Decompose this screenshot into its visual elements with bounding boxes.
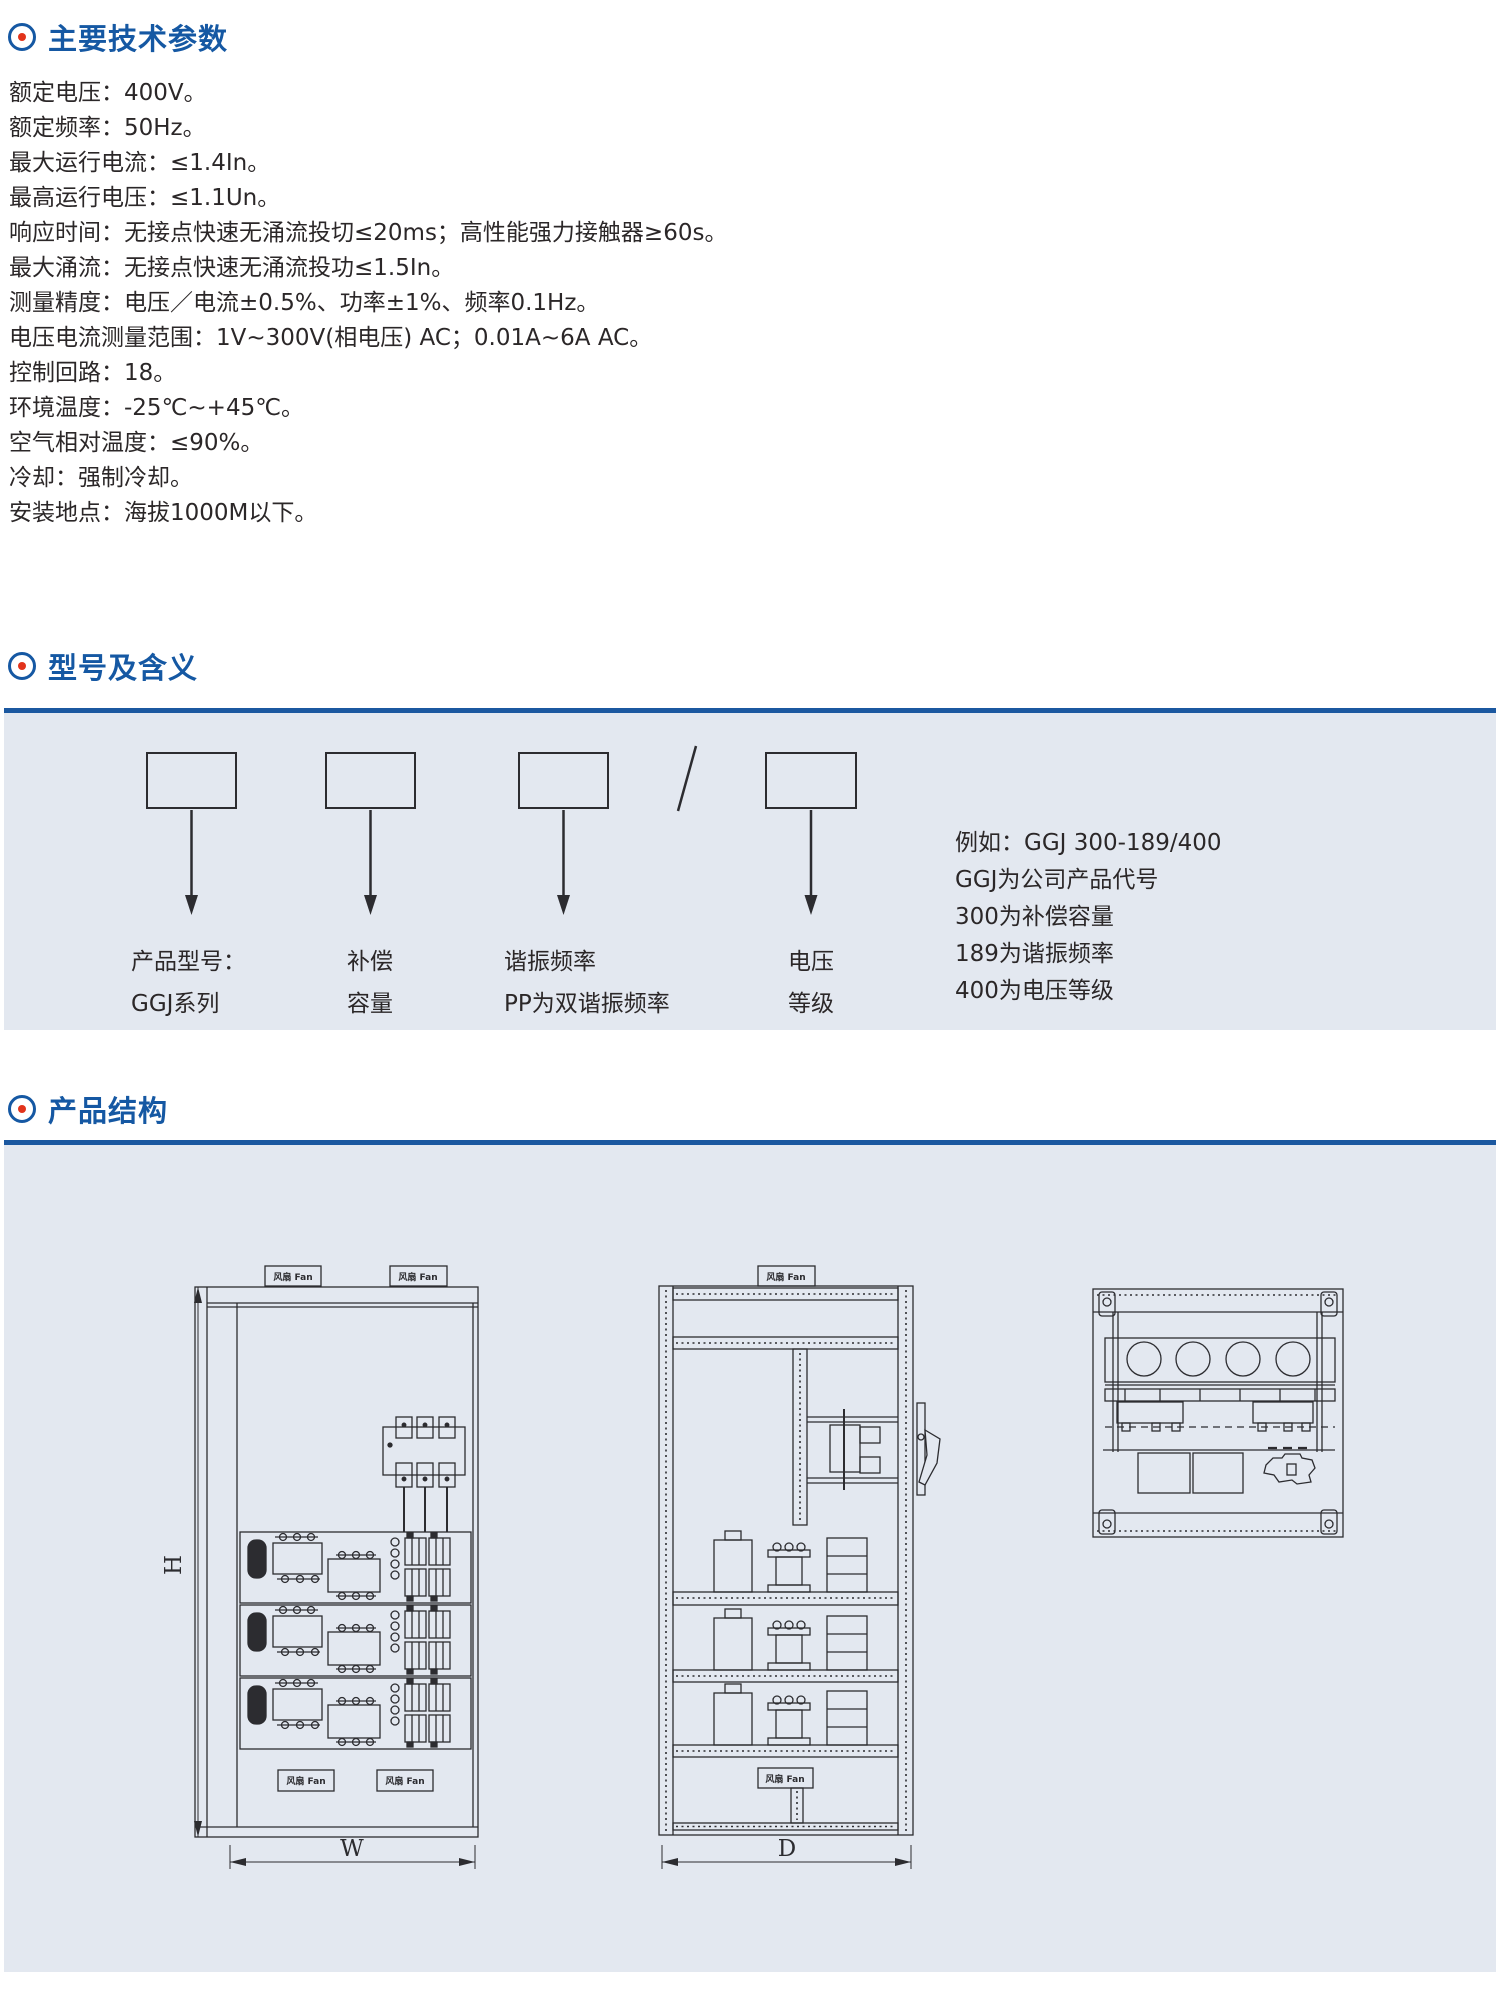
structure-drawings: 风扇 Fan 风扇 Fan xyxy=(4,1145,1496,1972)
spec-line: 额定频率：50Hz。 xyxy=(9,111,1109,146)
spec-line: 最大运行电流：≤1.4In。 xyxy=(9,146,1109,181)
section-header-tech-params: 主要技术参数 xyxy=(8,16,228,58)
model-box-voltage xyxy=(766,753,856,808)
spec-line: 安装地点：海拔1000M以下。 xyxy=(9,496,1109,531)
label-frequency-1: 谐振频率 xyxy=(504,949,596,975)
label-capacity-1: 补偿 xyxy=(347,949,393,975)
model-boxes xyxy=(147,746,856,811)
fan-label: 风扇 Fan xyxy=(286,1775,325,1787)
section-bullet-icon xyxy=(8,1095,36,1123)
fan-label: 风扇 Fan xyxy=(398,1271,437,1283)
capacitor-reactor-groups xyxy=(714,1531,867,1745)
spec-line: 额定电压：400V。 xyxy=(9,76,1109,111)
fan-label: 风扇 Fan xyxy=(766,1271,805,1283)
section-bullet-icon xyxy=(8,652,36,680)
label-capacity-2: 容量 xyxy=(347,991,393,1017)
product-structure-panel: 风扇 Fan 风扇 Fan xyxy=(4,1145,1496,1972)
section-title: 主要技术参数 xyxy=(48,16,228,58)
mounting-brackets xyxy=(1105,1402,1335,1431)
section-title: 型号及含义 xyxy=(48,645,198,687)
spec-line: 测量精度：电压／电流±0.5%、功率±1%、频率0.1Hz。 xyxy=(9,286,1109,321)
spec-line: 最大涌流：无接点快速无涌流投功≤1.5In。 xyxy=(9,251,1109,286)
side-view-drawing: 风扇 Fan xyxy=(659,1266,940,1869)
main-contactor xyxy=(383,1417,465,1532)
label-series-1: 产品型号： xyxy=(131,949,246,975)
operating-handle xyxy=(917,1403,940,1495)
spec-line: 冷却：强制冷却。 xyxy=(9,461,1109,496)
example-line: 300为补偿容量 xyxy=(955,904,1114,930)
section-bullet-icon xyxy=(8,23,36,51)
spec-line: 最高运行电压：≤1.1Un。 xyxy=(9,181,1109,216)
top-view-drawing xyxy=(1093,1289,1343,1537)
dimension-height: H xyxy=(161,1287,202,1837)
model-meaning-panel: 产品型号： GGJ系列 补偿 容量 谐振频率 PP为双谐振频率 电压 等级 例如… xyxy=(4,713,1496,1030)
label-frequency-2: PP为双谐振频率 xyxy=(504,991,670,1017)
red-dot-icon xyxy=(18,1105,26,1113)
label-series-2: GGJ系列 xyxy=(131,991,219,1017)
example-line: 189为谐振频率 xyxy=(955,941,1114,967)
spec-line: 空气相对温度：≤90%。 xyxy=(9,426,1109,461)
red-dot-icon xyxy=(18,662,26,670)
model-box-frequency xyxy=(519,753,608,808)
model-box-capacity xyxy=(326,753,415,808)
spec-line: 响应时间：无接点快速无涌流投切≤20ms；高性能强力接触器≥60s。 xyxy=(9,216,1109,251)
dim-h-label: H xyxy=(161,1555,187,1575)
section-header-structure: 产品结构 xyxy=(8,1088,168,1130)
model-arrows xyxy=(185,810,818,915)
dim-w-label: W xyxy=(340,1836,364,1862)
catalog-page: { "meta": { "accent_blue": "#1558a3", "a… xyxy=(0,0,1500,1992)
example-line: GGJ为公司产品代号 xyxy=(955,867,1158,893)
section-header-model: 型号及含义 xyxy=(8,645,198,687)
model-box-series xyxy=(147,753,236,808)
cabinet-outline xyxy=(659,1286,913,1835)
capacitor-cans-top xyxy=(1105,1338,1335,1382)
dimension-depth: D xyxy=(662,1836,911,1869)
fan-label: 风扇 Fan xyxy=(273,1271,312,1283)
red-dot-icon xyxy=(18,33,26,41)
fan-label: 风扇 Fan xyxy=(765,1773,804,1785)
dim-d-label: D xyxy=(778,1836,796,1862)
model-designation-diagram: 产品型号： GGJ系列 补偿 容量 谐振频率 PP为双谐振频率 电压 等级 例如… xyxy=(4,713,1496,1030)
slash-separator xyxy=(678,746,696,811)
module-outline xyxy=(1093,1289,1343,1537)
label-voltage-2: 等级 xyxy=(788,991,834,1017)
spec-line: 电压电流测量范围：1V~300V(相电压) AC；0.01A~6A AC。 xyxy=(9,321,1109,356)
example-line: 400为电压等级 xyxy=(955,978,1114,1004)
model-box-labels: 产品型号： GGJ系列 补偿 容量 谐振频率 PP为双谐振频率 电压 等级 xyxy=(131,949,834,1017)
section-title: 产品结构 xyxy=(48,1088,168,1130)
example-line: 例如：GGJ 300-189/400 xyxy=(955,830,1222,856)
spec-line: 控制回路：18。 xyxy=(9,356,1109,391)
label-voltage-1: 电压 xyxy=(788,949,834,975)
dimension-width: W xyxy=(230,1836,475,1869)
spec-line: 环境温度：-25℃~+45℃。 xyxy=(9,391,1109,426)
handle-cutout xyxy=(1264,1448,1315,1484)
switch-mechanism xyxy=(807,1403,940,1495)
fan-label: 风扇 Fan xyxy=(385,1775,424,1787)
capacitor-module-drawers xyxy=(240,1532,471,1749)
front-view-drawing: 风扇 Fan 风扇 Fan xyxy=(161,1266,478,1869)
spec-list: 额定电压：400V。 额定频率：50Hz。 最大运行电流：≤1.4In。 最高运… xyxy=(9,76,1109,531)
model-example-block: 例如：GGJ 300-189/400 GGJ为公司产品代号 300为补偿容量 1… xyxy=(955,830,1222,1004)
